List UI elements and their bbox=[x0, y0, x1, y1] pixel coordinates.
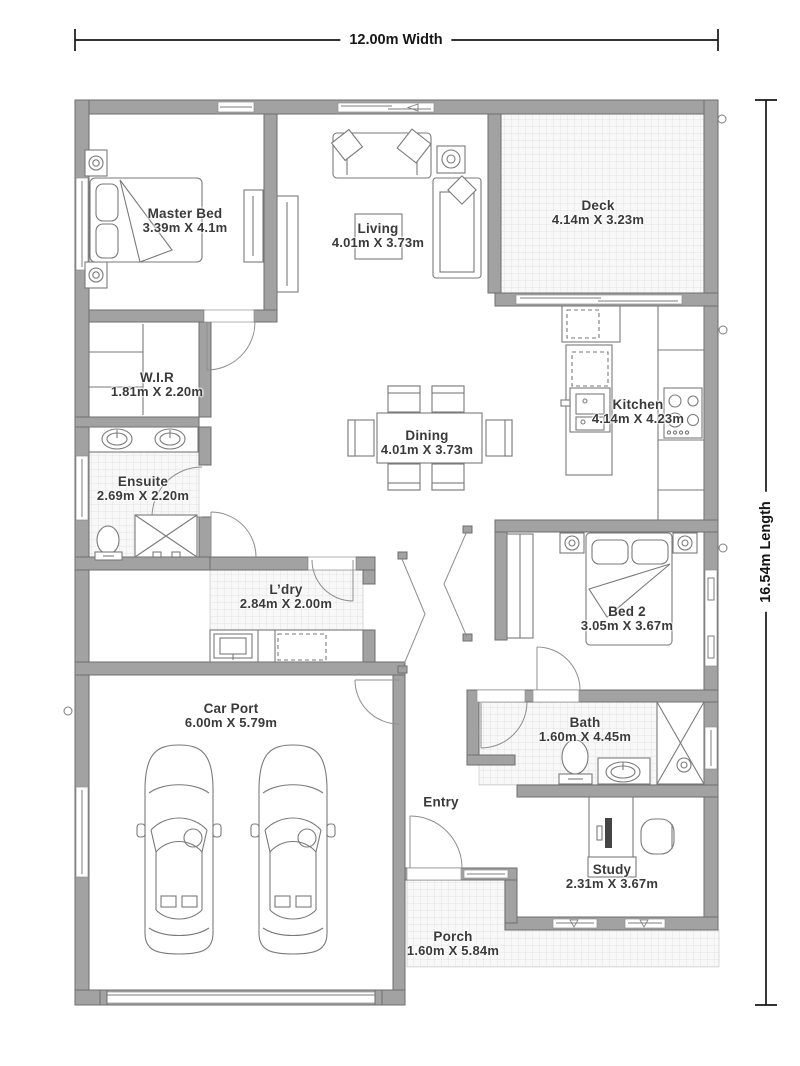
hall-bifold-doors bbox=[402, 531, 467, 669]
window-top-master bbox=[218, 102, 254, 112]
sliding-door-top-living bbox=[338, 103, 434, 112]
pillow bbox=[592, 540, 628, 564]
room-label-deck: Deck4.14m X 3.23m bbox=[552, 198, 644, 228]
nightstand bbox=[85, 150, 107, 176]
garage-opening bbox=[100, 990, 382, 1005]
room-label-porch: Porch1.60m X 5.84m bbox=[407, 929, 499, 959]
window-left-carport bbox=[76, 787, 88, 877]
room-label-laundry: L’dry2.84m X 2.00m bbox=[240, 582, 332, 612]
room-label-dining: Dining4.01m X 3.73m bbox=[381, 428, 473, 458]
living-furniture bbox=[332, 129, 481, 278]
pillow bbox=[96, 224, 118, 258]
shower-icon bbox=[135, 515, 197, 557]
bath-vanity bbox=[598, 758, 650, 784]
width-dimension-label: 12.00m Width bbox=[340, 32, 451, 48]
nightstand bbox=[85, 262, 107, 288]
car-mirror bbox=[137, 824, 145, 837]
bed2-door bbox=[537, 647, 580, 690]
room-label-bath: Bath1.60m X 4.45m bbox=[539, 715, 631, 745]
room-label-study: Study2.31m X 3.67m bbox=[566, 862, 658, 892]
downpipe-marker bbox=[719, 544, 727, 552]
pillow bbox=[96, 184, 118, 221]
pillow bbox=[632, 540, 668, 564]
car-mirror bbox=[251, 824, 259, 837]
kitchen-bench bbox=[562, 306, 620, 342]
downpipe-marker bbox=[64, 707, 72, 715]
floor-plan-drawing bbox=[0, 0, 800, 1066]
shower-icon bbox=[657, 702, 704, 784]
downpipe-marker bbox=[718, 115, 726, 123]
master-bed-door bbox=[207, 322, 255, 370]
entry-front-door bbox=[410, 816, 462, 868]
car-mirror bbox=[213, 824, 221, 837]
length-dimension-label: 16.54m Length bbox=[758, 492, 774, 612]
room-label-bed2: Bed 23.05m X 3.67m bbox=[581, 604, 673, 634]
laundry-fixtures bbox=[210, 630, 363, 662]
tap bbox=[561, 400, 570, 406]
room-label-kitchen: Kitchen4.14m X 4.23m bbox=[592, 397, 684, 427]
window-entry bbox=[464, 870, 508, 878]
carport-door bbox=[355, 680, 399, 724]
bath-door-opening bbox=[477, 690, 525, 702]
sliding-door-deck bbox=[516, 295, 682, 304]
bed2-door-opening bbox=[533, 690, 579, 702]
hall-door bbox=[211, 512, 256, 557]
window-right-bed2 bbox=[705, 570, 717, 666]
room-label-entry: Entry bbox=[423, 794, 459, 809]
window-right-bath bbox=[705, 727, 717, 769]
car-icon bbox=[251, 745, 335, 954]
monitor-icon bbox=[605, 818, 612, 848]
window-left-ensuite bbox=[76, 456, 88, 520]
downpipe-marker bbox=[719, 326, 727, 334]
master-door-opening bbox=[204, 310, 254, 322]
study-chair bbox=[641, 819, 674, 854]
room-label-ensuite: Ensuite2.69m X 2.20m bbox=[97, 474, 189, 504]
carport-cars bbox=[137, 745, 335, 954]
room-label-carport: Car Port6.00m X 5.79m bbox=[185, 701, 277, 731]
floor-plan: 12.00m Width 16.54m Length Master Bed3.3… bbox=[0, 0, 800, 1066]
entry-door-opening bbox=[407, 868, 461, 880]
vanity-double bbox=[89, 427, 198, 452]
room-label-living: Living4.01m X 3.73m bbox=[332, 221, 424, 251]
car-icon bbox=[137, 745, 221, 954]
car-mirror bbox=[327, 824, 335, 837]
room-label-wir: W.I.R1.81m X 2.20m bbox=[111, 370, 203, 400]
window-left-master bbox=[76, 178, 88, 270]
room-label-master-bed: Master Bed3.39m X 4.1m bbox=[143, 206, 228, 236]
